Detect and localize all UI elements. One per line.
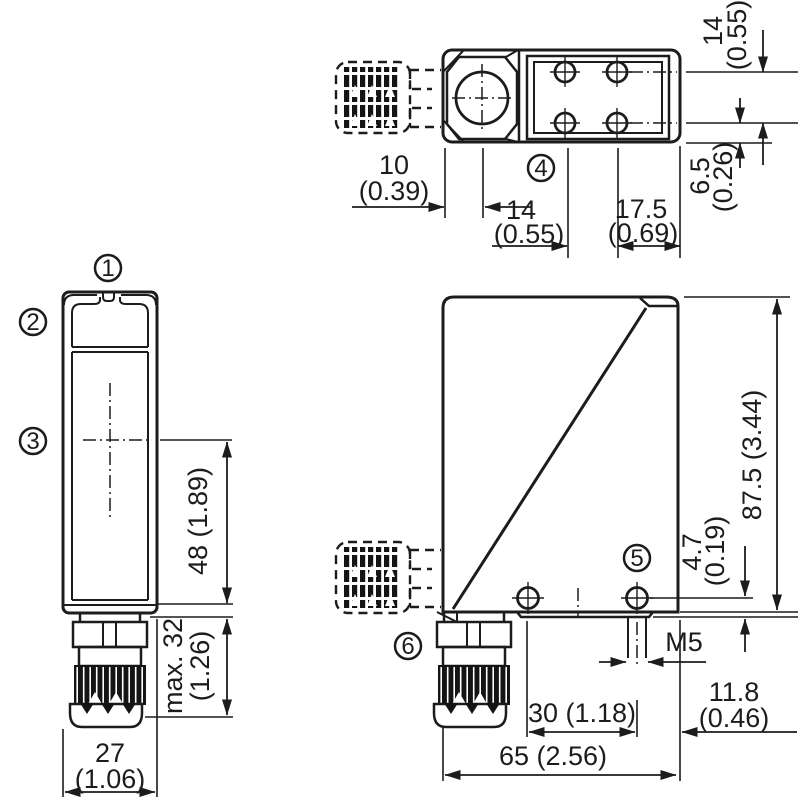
dim-top-rear-in: (0.69) xyxy=(608,218,679,248)
top-view: 10 (0.39) 14 (0.55) 17.5 (0.69) 14 (0.55… xyxy=(336,0,798,258)
cable-gland-side xyxy=(434,612,511,727)
dim-side-height: 87.5 (3.44) xyxy=(737,390,767,521)
svg-text:5: 5 xyxy=(630,545,643,572)
dim-front-gland-in: (1.26) xyxy=(185,631,215,702)
dim-side-rear-in: (0.46) xyxy=(699,703,770,733)
front-view: 48 (1.89) max. 32 (1.26) 27 (1.06) 1 2 3 xyxy=(20,255,233,797)
top-view-body xyxy=(443,50,680,142)
side-view: 87.5 (3.44) 4.7 (0.19) M5 30 (1.18) 11.8… xyxy=(336,297,798,781)
dim-side-thread: M5 xyxy=(665,627,703,657)
cable-gland-front xyxy=(70,612,147,727)
dim-front-width-in: (1.06) xyxy=(75,764,146,794)
svg-text:2: 2 xyxy=(26,309,39,336)
dim-side-depth: 65 (2.56) xyxy=(499,741,607,771)
dim-top-width-in: (0.55) xyxy=(722,0,752,70)
dim-top-hole-in: (0.55) xyxy=(494,219,565,249)
front-view-body xyxy=(63,292,157,613)
dim-side-hole-spacing: 30 (1.18) xyxy=(528,698,636,728)
svg-text:1: 1 xyxy=(101,255,114,282)
dimensional-drawing-page: 10 (0.39) 14 (0.55) 17.5 (0.69) 14 (0.55… xyxy=(0,0,800,800)
cable-gland-dashed-top xyxy=(336,62,441,133)
dim-front-gland-mm: max. 32 xyxy=(158,618,188,714)
cable-gland-dashed-side xyxy=(336,542,441,613)
side-view-body xyxy=(437,297,678,668)
dim-front-height: 48 (1.89) xyxy=(183,467,213,575)
callout-1: 1 xyxy=(95,255,121,282)
svg-text:6: 6 xyxy=(401,633,414,660)
dim-top-edge-in: (0.26) xyxy=(708,142,738,213)
svg-text:3: 3 xyxy=(26,428,39,455)
sensor-dimensional-drawing: 10 (0.39) 14 (0.55) 17.5 (0.69) 14 (0.55… xyxy=(0,0,800,800)
callout-6: 6 xyxy=(395,633,421,660)
callout-3: 3 xyxy=(20,428,46,455)
callout-2: 2 xyxy=(20,309,46,336)
svg-text:4: 4 xyxy=(534,155,547,182)
dim-top-front-in: (0.39) xyxy=(359,176,430,206)
dim-side-hole-offset-in: (0.19) xyxy=(700,516,730,587)
callout-4: 4 xyxy=(528,155,554,182)
